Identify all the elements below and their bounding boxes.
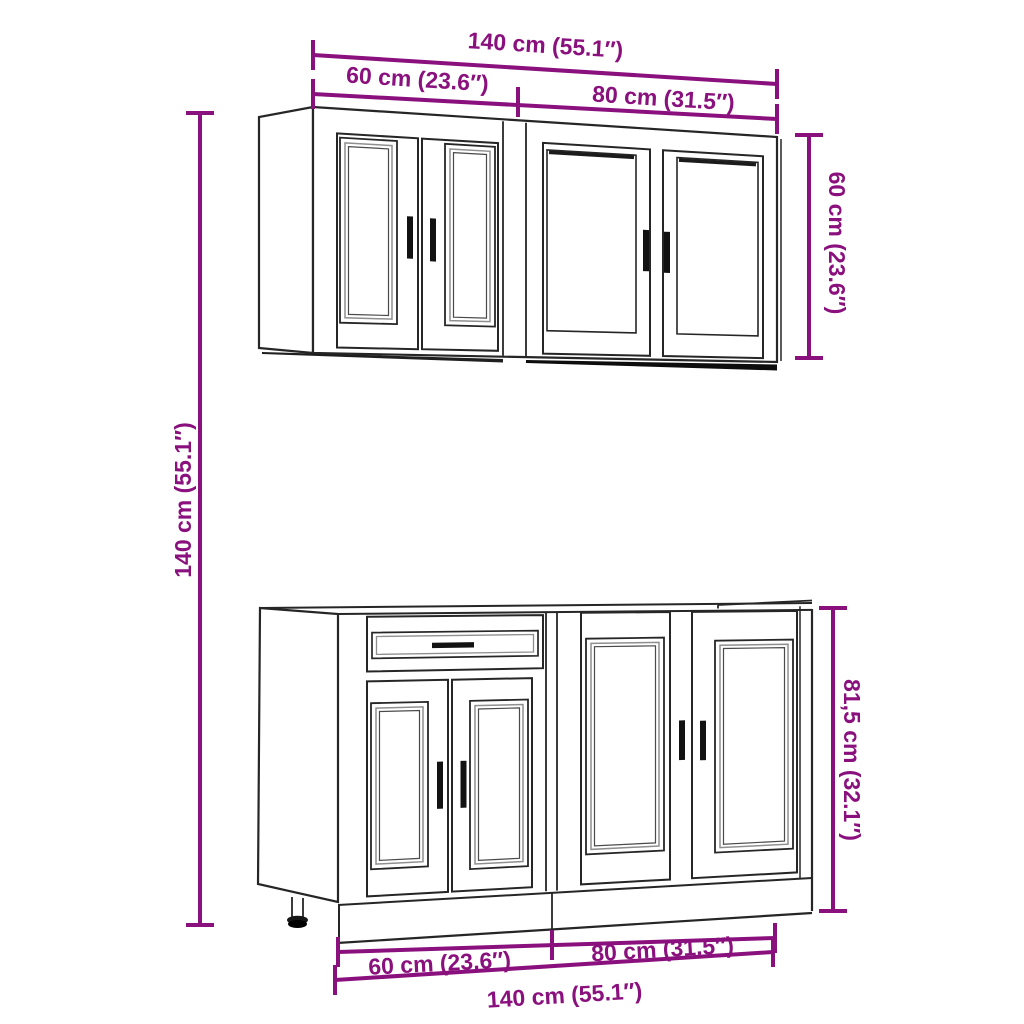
- door-panel-mid: [475, 705, 523, 865]
- dim-label-base-height: 81,5 cm (32.1″): [839, 679, 865, 841]
- dim-base-cabinet-height: 81,5 cm (32.1″): [819, 608, 865, 911]
- door-handle: [437, 762, 443, 809]
- door-panel-outer: [715, 640, 793, 853]
- base-cabinet-side-panel: [258, 608, 338, 902]
- door-handle: [461, 761, 467, 808]
- wall-cabinet-run: [259, 107, 781, 371]
- door-panel-inner: [479, 708, 520, 861]
- dim-bottom-widths: 60 cm (23.6″) 80 cm (31.5″): [338, 923, 775, 980]
- cabinet-door: [692, 611, 797, 878]
- plinth-top-edge: [338, 878, 812, 905]
- dim-label-top-left: 60 cm (23.6″): [345, 62, 489, 97]
- door-handle: [643, 230, 649, 271]
- door-panel-outer: [586, 638, 664, 855]
- door-handle: [407, 216, 413, 258]
- dim-label-bottom-total: 140 cm (55.1″): [486, 977, 643, 1012]
- cabinet-dimension-diagram: 140 cm (55.1″) 60 cm (23.6″) 80 cm (31.5…: [0, 0, 1024, 1024]
- wall-cabinet-side-panel: [259, 107, 313, 353]
- door-panel-mid: [720, 644, 788, 847]
- base-cabinet-run: [258, 601, 812, 943]
- dim-label-wall-height: 60 cm (23.6″): [824, 172, 850, 315]
- door-handle: [664, 232, 670, 273]
- door-handle: [700, 721, 706, 761]
- dim-label-top-total: 140 cm (55.1″): [467, 27, 624, 63]
- drawer-handle: [432, 642, 474, 648]
- door-panel-mid: [591, 642, 659, 849]
- adjustable-foot: [288, 920, 307, 928]
- dim-overall-height: 140 cm (55.1″): [170, 113, 214, 925]
- door-handle: [679, 720, 685, 760]
- door-panel-inner: [595, 646, 656, 846]
- dim-label-overall-height: 140 cm (55.1″): [170, 422, 196, 578]
- door-panel-inner: [380, 711, 420, 861]
- door-panel-mid: [376, 707, 423, 864]
- dim-wall-cabinet-height: 60 cm (23.6″): [795, 135, 850, 358]
- door-panel-inner: [724, 648, 785, 845]
- door-handle: [430, 218, 436, 261]
